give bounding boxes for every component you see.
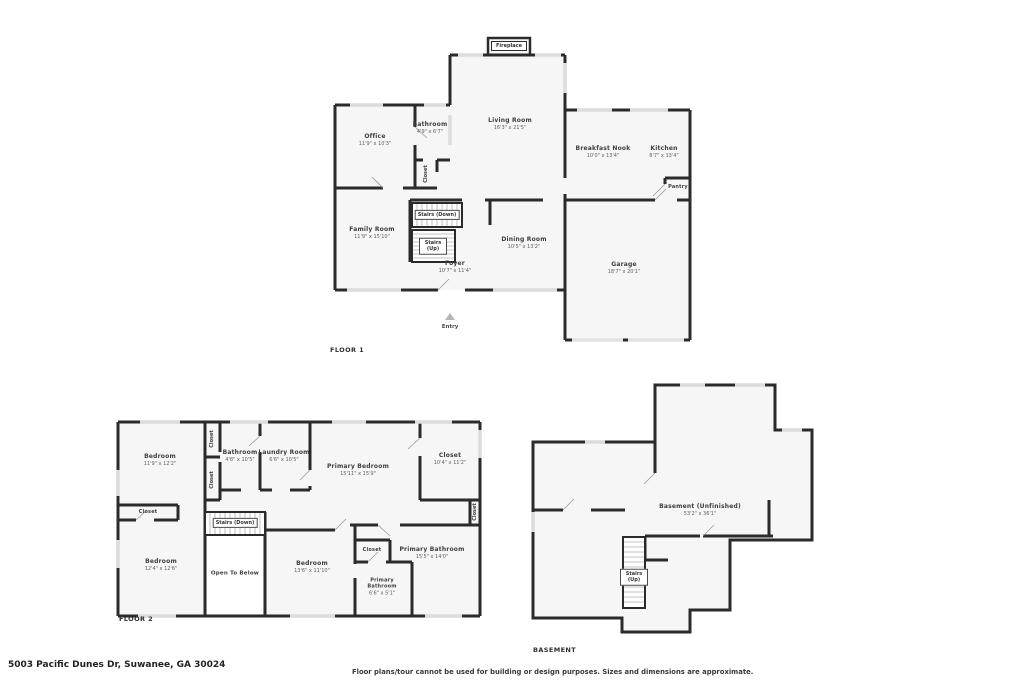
floorplan-canvas: Fireplace Office 11'9" x 10'3" Bathroom … [0, 0, 1024, 681]
basement-stairs-up-label: Stairs (Up) [620, 569, 648, 586]
floor1-stairs-down-label: Stairs (Down) [415, 210, 460, 220]
entry-label: Entry [442, 324, 459, 330]
floor1-walls-svg [325, 30, 695, 365]
floor2-walls-svg [110, 412, 490, 627]
disclaimer-text: Floor plans/tour cannot be used for buil… [352, 668, 753, 676]
floor1-title: FLOOR 1 [330, 346, 364, 354]
room-label-closet-right: Closet [472, 503, 478, 521]
fireplace-label: Fireplace [491, 41, 527, 51]
floor2-title: FLOOR 2 [119, 615, 153, 623]
room-label-closet-a: Closet [209, 430, 215, 448]
open-to-below-void [207, 536, 263, 614]
room-label-closet: Closet [423, 165, 429, 183]
floor2-plan: Bedroom 11'9" x 12'2" Closet Closet Bath… [110, 412, 490, 627]
entry-arrow-icon [445, 313, 455, 320]
floor1-stairs-up-label: Stairs (Up) [419, 238, 447, 255]
basement-walls-svg [520, 380, 820, 660]
floor1-footprint [335, 55, 690, 340]
basement-title: BASEMENT [533, 646, 576, 654]
property-address: 5003 Pacific Dunes Dr, Suwanee, GA 30024 [8, 660, 225, 670]
room-label-closet-b: Closet [209, 471, 215, 489]
floor1-plan: Fireplace Office 11'9" x 10'3" Bathroom … [325, 30, 695, 365]
floor2-stairs-down-label: Stairs (Down) [213, 518, 258, 528]
basement-plan: Basement (Unfinished) 53'2" x 36'1" Stai… [520, 380, 820, 660]
